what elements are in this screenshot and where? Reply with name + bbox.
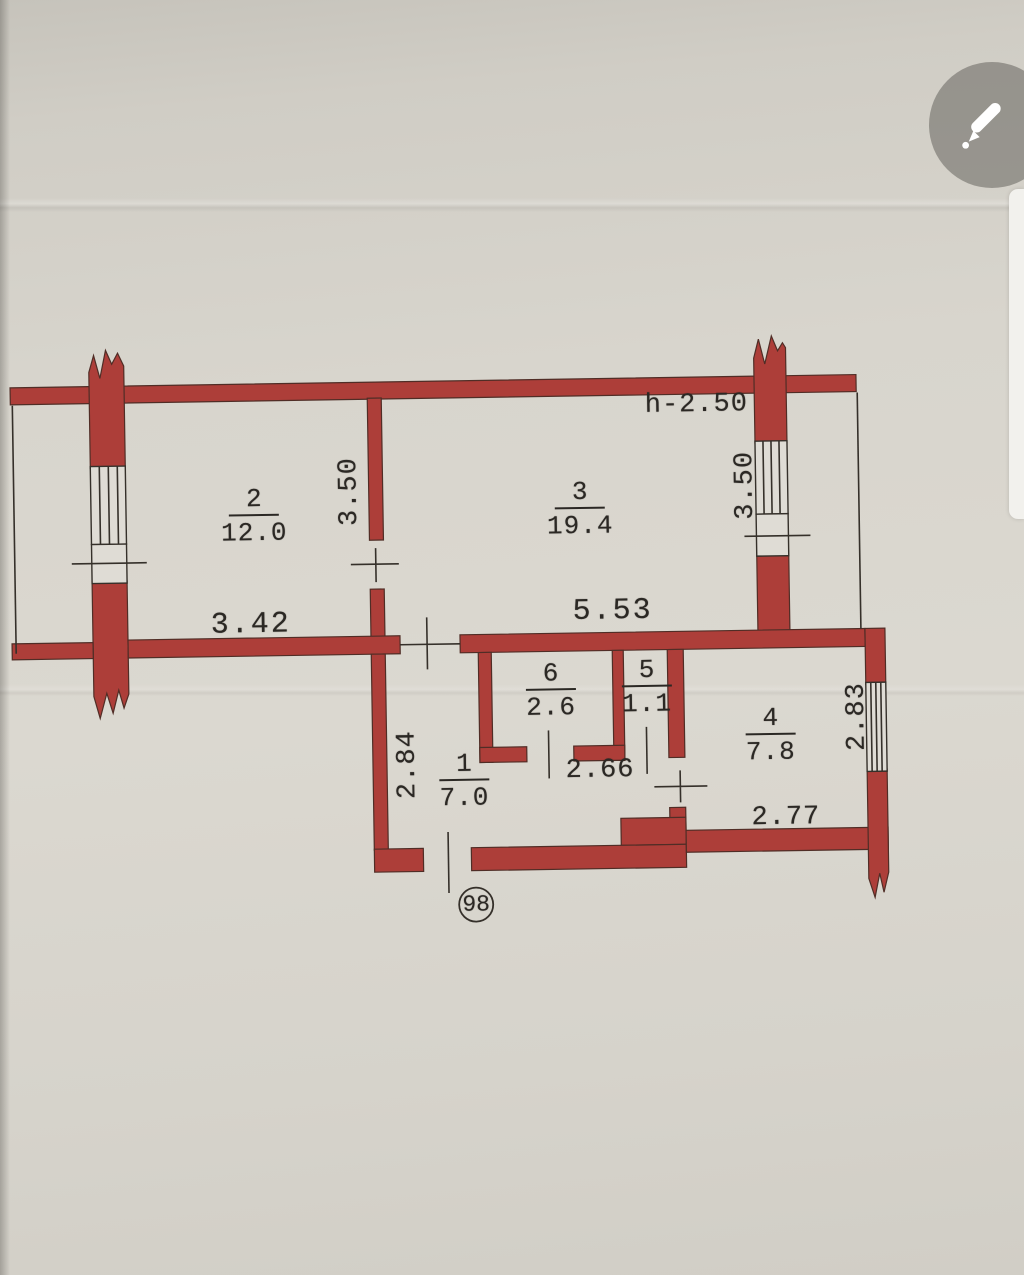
dim-room4-width: 2.77 <box>751 802 820 833</box>
dim-room4-depth: 2.83 <box>842 682 873 751</box>
tick-door-2-3 <box>351 548 400 583</box>
room-5-number: 5 <box>622 657 672 688</box>
room-2-number: 2 <box>229 486 279 517</box>
wall-balcony-left-bottom <box>12 643 93 660</box>
wall-hall-bottom-left <box>374 848 423 872</box>
room-4-area: 7.8 <box>746 738 796 767</box>
wall-left-upper-break <box>88 350 125 469</box>
dim-hall-depth: 2.84 <box>392 730 423 799</box>
room-4-number: 4 <box>745 705 795 736</box>
room-1-area: 7.0 <box>439 784 489 813</box>
wall-step-block <box>621 817 686 845</box>
scrollbar-thumb[interactable] <box>1009 189 1024 519</box>
tick-door-room3-hall <box>400 617 461 670</box>
floor-plan-drawing <box>0 0 1024 1275</box>
dim-room2-width: 3.42 <box>211 607 292 642</box>
wall-hall-left <box>371 654 388 850</box>
window-room3-sill <box>756 514 789 556</box>
tick-window-left <box>72 563 147 564</box>
tick-entrance-door <box>448 832 449 893</box>
dim-hall-width: 2.66 <box>565 755 634 786</box>
tick-door-room4 <box>654 770 707 803</box>
room-3-label: 3 19.4 <box>546 478 613 541</box>
room-6-number: 6 <box>526 660 576 691</box>
wall-right-lower-break <box>867 769 889 897</box>
balcony-left-line <box>12 406 16 654</box>
room-4-label: 4 7.8 <box>745 705 796 768</box>
wall-divider-2-3-lower <box>370 589 385 638</box>
room-6-label: 6 2.6 <box>525 660 576 723</box>
room-2-area: 12.0 <box>221 519 288 549</box>
room-2-label: 2 12.0 <box>220 486 287 549</box>
dim-room3-width: 5.53 <box>572 594 653 629</box>
room-6-area: 2.6 <box>526 693 576 722</box>
wall-room3-right-lower <box>757 556 790 632</box>
tick-door-room6 <box>548 730 549 778</box>
height-note: h-2.50 <box>645 389 749 421</box>
wall-right-upper <box>865 628 886 684</box>
room-5-area: 1.1 <box>622 690 672 719</box>
pencil-icon <box>955 96 1013 154</box>
room-3-area: 19.4 <box>547 512 614 542</box>
balcony-right-line <box>857 393 861 629</box>
dim-room2-depth: 3.50 <box>334 457 365 526</box>
wall-room6-left <box>478 652 493 762</box>
unit-number: 98 <box>462 891 490 917</box>
tick-window-room3 <box>744 535 810 536</box>
floor-plan: h-2.50 2 12.0 3 19.4 6 2.6 5 1.1 1 7.0 4… <box>0 0 1024 1275</box>
room-5-label: 5 1.1 <box>621 657 672 720</box>
room-1-number: 1 <box>439 750 489 781</box>
wall-room3-right-upper-break <box>753 336 787 443</box>
room-1-label: 1 7.0 <box>439 750 490 813</box>
tick-door-room5 <box>646 727 647 774</box>
wall-hall-bottom-right <box>471 844 686 870</box>
photo-viewer-screen: h-2.50 2 12.0 3 19.4 6 2.6 5 1.1 1 7.0 4… <box>0 0 1024 1275</box>
wall-left-lower-break <box>92 581 129 719</box>
room-3-number: 3 <box>555 479 605 510</box>
wall-mid-right <box>460 628 865 652</box>
wall-divider-2-3-upper <box>367 398 383 540</box>
dim-room3-depth: 3.50 <box>730 451 761 520</box>
